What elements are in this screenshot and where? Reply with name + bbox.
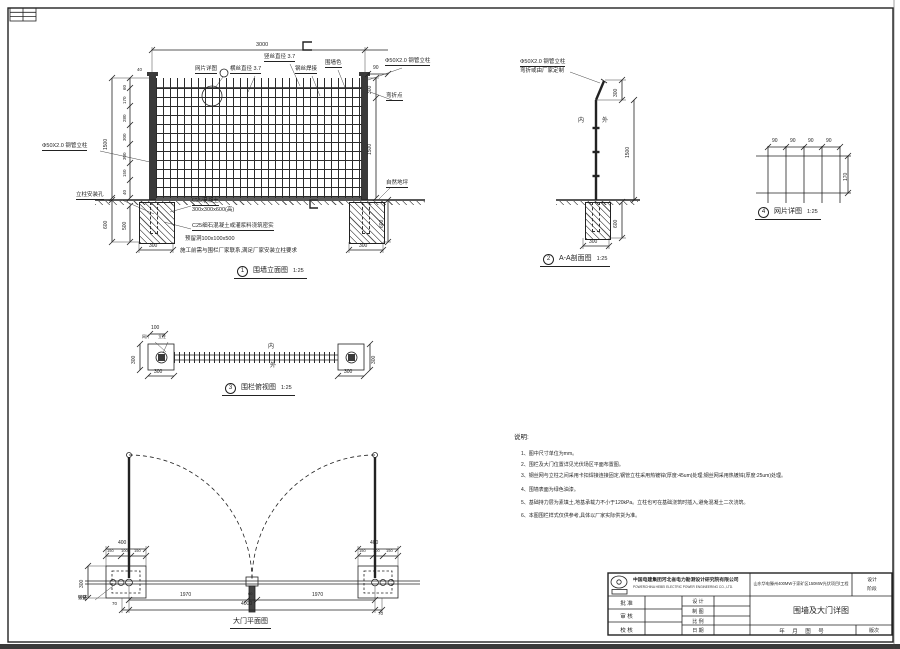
elevation-title-text: 围墙立面图 [253, 265, 288, 275]
mesh-dim-90-2: 90 [808, 139, 814, 145]
dim-300-found-right: 300 [359, 244, 367, 250]
dim-600-right: 600 [380, 220, 386, 228]
gate-dim-70-right: 70 [378, 612, 383, 617]
project-name: 山东华电滕州400MW于家矿区150MW光伏项目Ⅰ工程 [751, 581, 851, 587]
note-5: 5、基础持力层为素填土,地基承载力不小于120kPa。立柱也可在基础浇筑时插入,… [521, 499, 749, 506]
field-date: 日 期 [682, 627, 714, 634]
fence-spikes [156, 78, 362, 88]
note-4: 4、围墙表面为绿色油漆。 [521, 486, 579, 493]
field-review: 审 核 [608, 612, 645, 620]
section-scale: 1:25 [597, 256, 608, 262]
plan-scale: 1:25 [281, 385, 292, 391]
section-dim-600: 600 [614, 220, 620, 228]
label-install-hole: 立柱安装孔 [76, 192, 104, 200]
elevation-callout-number: 1 [237, 266, 248, 277]
plan-label-inner: 内 [268, 344, 274, 351]
section-callout-number: 2 [543, 254, 554, 265]
plan-dim-300-right: 300 [372, 356, 378, 364]
company-name-cn: 中国电建集团河北省电力勘测设计研究院有限公司 [633, 576, 739, 583]
label-post-left: Φ50X2.0 钢管立柱 [42, 143, 87, 151]
field-draft: 制 图 [682, 608, 714, 615]
dim-chain-2: 280 [123, 114, 128, 122]
section-dim-300b: 300 [589, 240, 597, 246]
dim-chain-5: 150 [123, 169, 128, 177]
section-post-embed [592, 202, 600, 232]
field-design: 设 计 [682, 598, 714, 605]
note-2: 2、围栏及大门位置详见光伏场区平面布置图。 [521, 461, 624, 468]
label-concrete: C25混凝土 [192, 198, 219, 206]
dim-500-embed: 500 [123, 222, 129, 230]
note-3: 3、钢丝网与立柱之间采用卡扣焊接连接固定,钢管立柱采用热镀锌(厚度:45um)处… [521, 472, 786, 479]
drawing-sheet: 40 3000 网片详图 横丝直径 3.7 竖丝直径 3.7 钢丝焊接 围墙色 … [0, 0, 900, 649]
gate-dim-4000: 4000 [241, 602, 252, 608]
gate-plan-view [85, 453, 420, 614]
gate-chainR-1: 100 [373, 549, 380, 553]
dim-600-left: 600 [104, 221, 110, 229]
label-weld: 钢丝焊接 [295, 66, 317, 74]
gate-title-text: 大门平面图 [233, 616, 268, 626]
section-title: 2 A-A剖面图 1:25 [540, 253, 610, 267]
label-vert-wire: 竖丝直径 3.7 [264, 54, 295, 62]
fence-mesh [156, 88, 362, 198]
section-label-inner: 内 [578, 118, 584, 125]
plan-title: 3 围栏俯视图 1:25 [222, 382, 295, 396]
mesh-scale: 1:25 [807, 209, 818, 215]
gate-chainL-2: 150 [134, 549, 141, 553]
mesh-dim-90-3: 90 [826, 139, 832, 145]
dim-300-bend: 300 [368, 86, 374, 94]
dim-chain-3: 300 [123, 133, 128, 141]
dim-90: 90 [373, 66, 379, 72]
gate-dim-1970-left: 1970 [180, 593, 191, 599]
gate-dim-70-left: 70 [112, 602, 117, 607]
note-1: 1、图中尺寸单位为mm。 [521, 450, 577, 457]
mesh-dim-90-1: 90 [790, 139, 796, 145]
mesh-title: 4 网片详图 1:25 [755, 206, 821, 220]
gate-title: 大门平面图 [230, 616, 271, 629]
dim-3000: 3000 [256, 42, 268, 48]
label-bend-point: 弯折点 [386, 93, 403, 101]
elevation-scale: 1:25 [293, 268, 304, 274]
section-label-bend: 弯折或由厂家定制 [520, 68, 564, 74]
notes-heading: 说明: [514, 434, 529, 441]
elevation-title: 1 围墙立面图 1:25 [234, 265, 307, 279]
gate-chainL-1: 100 [121, 549, 128, 553]
dim-chain-6: 40 [123, 190, 128, 195]
gate-chainR-0: 150 [359, 549, 366, 553]
mesh-title-text: 网片详图 [774, 206, 802, 216]
label-concrete-size: 300x300x600(高) [192, 207, 234, 213]
label-reserved-hole: 预留洞100x100x500 [185, 236, 235, 242]
label-horiz-wire: 横丝直径 3.7 [230, 66, 261, 74]
dim-1500-left: 1500 [104, 139, 110, 150]
post-embed-left [150, 202, 158, 234]
section-label-outer: 外 [602, 118, 608, 125]
plan-dim-100: 100 [151, 326, 159, 332]
section-dim-300: 300 [614, 89, 620, 97]
stage-line2: 阶段 [852, 585, 892, 592]
plan-dim-300-left: 300 [132, 356, 138, 364]
plan-callout-number: 3 [225, 383, 236, 394]
note-6: 6、本图围栏样式仅供参考,具体以厂家实际供货为准。 [521, 512, 640, 519]
plan-title-text: 围栏俯视图 [241, 382, 276, 392]
plan-dim-300-bl: 300 [154, 370, 162, 376]
gate-dim-400-right: 400 [370, 541, 378, 547]
section-label-post: Φ50X2.0 钢管立柱 [520, 59, 565, 67]
field-check: 校 核 [608, 626, 645, 634]
gate-dim-1970-right: 1970 [312, 593, 323, 599]
plan-label-outer: 外 [270, 363, 276, 370]
label-post-right: Φ50X2.0 钢管立柱 [385, 58, 430, 66]
dim-1500-right: 1500 [368, 144, 374, 155]
stage-line1: 设计 [852, 576, 892, 583]
gate-dim-300-side: 300 [80, 580, 86, 588]
plan-label-mesh: 网片 [142, 335, 150, 339]
gate-label-hinge: 铰链 [78, 596, 87, 601]
plan-dim-300-br: 300 [344, 370, 352, 376]
dim-chain-1: 170 [123, 96, 128, 104]
gate-dim-center: 60 [248, 592, 252, 596]
gate-chainL-0: 150 [107, 549, 114, 553]
mesh-callout-number: 4 [758, 207, 769, 218]
dim-chain-4: 300 [123, 152, 128, 160]
mesh-dim-90-0: 90 [772, 139, 778, 145]
dim-chain-0: 60 [123, 85, 128, 90]
company-name-en: POWERCHINA HEBEI ELECTRIC POWER ENGINEER… [633, 585, 733, 589]
powerchina-logo-icon [611, 576, 627, 588]
label-mesh-detail: 网片详图 [195, 66, 217, 74]
field-ratio: 比 例 [682, 618, 714, 625]
label-ground: 自然地坪 [386, 180, 408, 188]
section-title-text: A-A剖面图 [559, 253, 592, 263]
label-install-note: 施工前需与围栏厂家联系,满足厂家安装立柱要求 [180, 248, 297, 254]
label-grout: C25细石混凝土或灌浆料浇筑密实 [192, 223, 274, 231]
drawing-title: 围墙及大门详图 [750, 605, 892, 616]
mesh-detail-view [756, 144, 851, 203]
plan-wires [174, 352, 338, 363]
post-embed-right [362, 202, 370, 234]
gate-dim-400-left: 400 [118, 541, 126, 547]
gate-chainR-2: 150 [386, 549, 393, 553]
dim-post-top-offset: 40 [137, 68, 142, 73]
section-dim-1500: 1500 [626, 147, 632, 158]
label-paint: 围墙色 [325, 60, 342, 68]
plan-label-post: 立柱 [158, 335, 166, 339]
field-approve: 批 准 [608, 599, 645, 607]
mesh-dim-170: 170 [844, 173, 850, 181]
dim-300-found-left: 300 [149, 244, 157, 250]
field-date-no: 年 月 图 号 [750, 627, 856, 635]
field-version: 版次 [856, 627, 892, 634]
